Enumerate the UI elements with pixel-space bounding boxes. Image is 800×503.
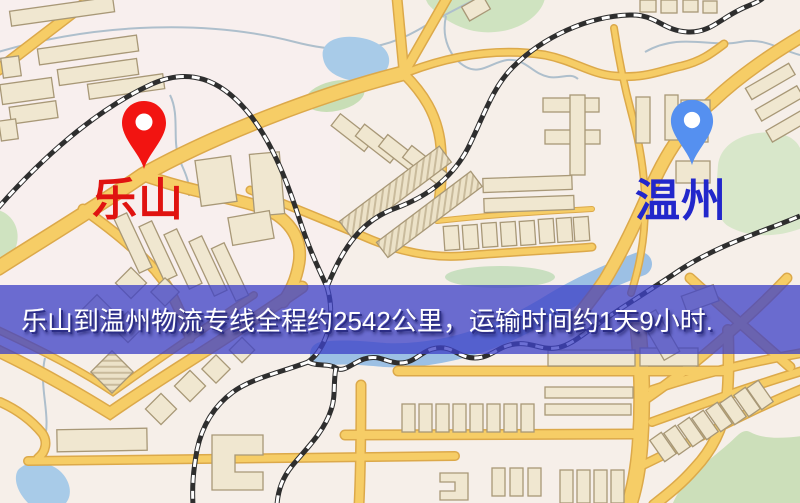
origin-pin-hole: [136, 114, 153, 131]
destination-city-label: 温州: [635, 178, 727, 223]
destination-pin-hole: [684, 112, 700, 128]
origin-pin-body: [122, 101, 166, 169]
destination-pin-icon: [669, 98, 715, 167]
map-screenshot: 乐山 温州 乐山到温州物流专线全程约2542公里，运输时间约1天9小时.: [0, 0, 800, 503]
destination-pin-body: [671, 100, 713, 165]
origin-city-label: 乐山: [92, 177, 184, 222]
route-info-banner: 乐山到温州物流专线全程约2542公里，运输时间约1天9小时.: [0, 285, 800, 354]
origin-pin-icon: [120, 99, 168, 171]
map-canvas: [0, 0, 800, 503]
map-background-tint: [0, 0, 340, 300]
route-info-text: 乐山到温州物流专线全程约2542公里，运输时间约1天9小时.: [0, 301, 713, 338]
